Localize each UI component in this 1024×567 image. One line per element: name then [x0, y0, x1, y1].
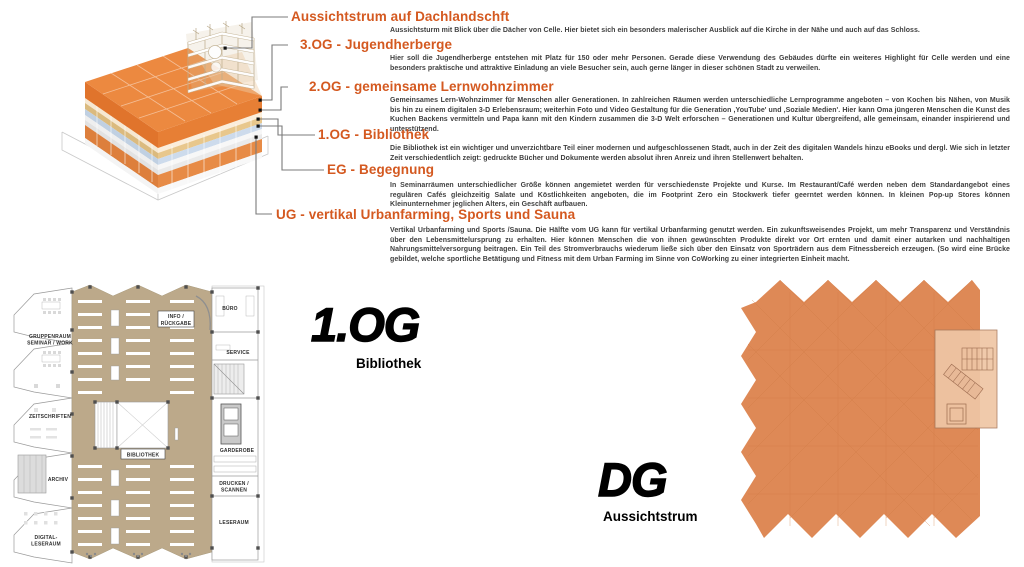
label-leseraum: LESERAUM	[219, 520, 249, 526]
label-service: SERVICE	[226, 350, 250, 356]
section-heading-aussichtsturm: Aussichtstrum auf Dachlandschft	[291, 9, 509, 24]
section-heading-eg: EG - Begegnung	[327, 162, 434, 177]
roof-title: DG	[598, 452, 667, 507]
section-heading-3og: 3.OG - Jugendherberge	[300, 37, 452, 52]
label-drucken-scannen: DRUCKEN /	[219, 481, 249, 487]
atrium	[95, 402, 168, 448]
section-body-1og: Die Bibliothek ist ein wichtiger und unv…	[390, 144, 1010, 163]
plans-drawing: GRUPPENRAUM SEMINAR / WORK ZEITSCHRIFTEN…	[0, 270, 1024, 567]
roof-plan	[741, 280, 997, 538]
elevator-block	[221, 404, 241, 444]
first-floor-subtitle: Bibliothek	[356, 356, 421, 371]
section-body-eg: In Seminarräumen unterschiedlicher Größe…	[390, 181, 1010, 210]
label-buero: BÜRO	[222, 305, 238, 312]
label-archiv: ARCHIV	[48, 477, 69, 483]
section-body-aussichtsturm: Aussichtsturm mit Blick über die Dächer …	[390, 26, 1010, 36]
stairwell	[214, 364, 244, 394]
tower-footprint-overlay	[935, 330, 997, 428]
section-heading-2og: 2.OG - gemeinsame Lernwohnzimmer	[309, 79, 554, 94]
first-floor-plan: GRUPPENRAUM SEMINAR / WORK ZEITSCHRIFTEN…	[14, 285, 264, 563]
label-info-rueckgabe: INFO /	[168, 314, 184, 320]
left-wing-rooms	[14, 288, 72, 563]
archive-shelving	[18, 455, 46, 493]
svg-text:RÜCKGABE: RÜCKGABE	[161, 320, 192, 327]
presentation-board: Aussichtstrum auf Dachlandschft Aussicht…	[0, 0, 1024, 567]
isometric-model-diagram	[0, 0, 340, 270]
section-body-3og: Hier soll die Jugendherberge entstehen m…	[390, 54, 1010, 73]
svg-text:SCANNEN: SCANNEN	[221, 488, 247, 494]
first-floor-title: 1.OG	[311, 297, 419, 352]
label-gruppenraum: GRUPPENRAUM	[29, 334, 71, 340]
svg-text:LESERAUM: LESERAUM	[31, 542, 61, 548]
label-bibliothek: BIBLIOTHEK	[127, 453, 160, 459]
label-digital-leseraum: DIGITAL-	[35, 535, 58, 541]
label-zeitschriften: ZEITSCHRIFTEN	[29, 414, 71, 420]
section-heading-1og: 1.OG - Bibliothek	[318, 127, 429, 142]
svg-text:SEMINAR / WORK: SEMINAR / WORK	[27, 341, 73, 347]
section-body-ug: Vertikal Urbanfarming und Sports /Sauna.…	[390, 226, 1010, 265]
label-garderobe: GARDEROBE	[220, 448, 255, 454]
section-heading-ug: UG - vertikal Urbanfarming, Sports und S…	[276, 207, 575, 222]
section-body-2og: Gemeinsames Lern-Wohnzimmer für Menschen…	[390, 96, 1010, 135]
roof-subtitle: Aussichtstrum	[603, 509, 698, 524]
